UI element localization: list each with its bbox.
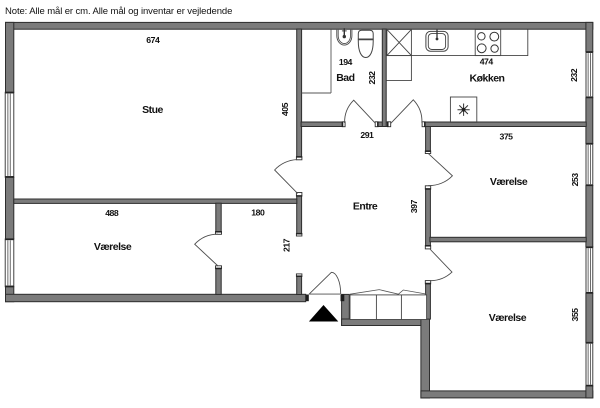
svg-text:Værelse: Værelse: [490, 176, 528, 188]
svg-text:405: 405: [280, 102, 290, 116]
svg-text:355: 355: [570, 308, 580, 322]
svg-text:180: 180: [251, 208, 265, 218]
svg-text:Værelse: Værelse: [94, 241, 132, 253]
svg-text:253: 253: [570, 173, 580, 187]
svg-text:488: 488: [105, 208, 119, 218]
svg-text:474: 474: [480, 57, 494, 67]
svg-text:Stue: Stue: [142, 104, 163, 116]
svg-text:217: 217: [281, 238, 291, 252]
svg-text:232: 232: [569, 68, 579, 82]
svg-text:Bad: Bad: [336, 72, 354, 84]
svg-text:Entre: Entre: [353, 201, 378, 213]
svg-text:232: 232: [367, 71, 377, 85]
svg-text:Køkken: Køkken: [470, 73, 505, 85]
svg-text:Note: Alle mål er cm. Alle mål: Note: Alle mål er cm. Alle mål og invent…: [5, 6, 232, 17]
svg-text:194: 194: [339, 57, 353, 67]
svg-text:291: 291: [360, 130, 374, 140]
svg-text:674: 674: [146, 35, 160, 45]
svg-text:Værelse: Værelse: [489, 312, 527, 324]
svg-text:375: 375: [500, 132, 514, 142]
svg-text:397: 397: [409, 200, 419, 214]
